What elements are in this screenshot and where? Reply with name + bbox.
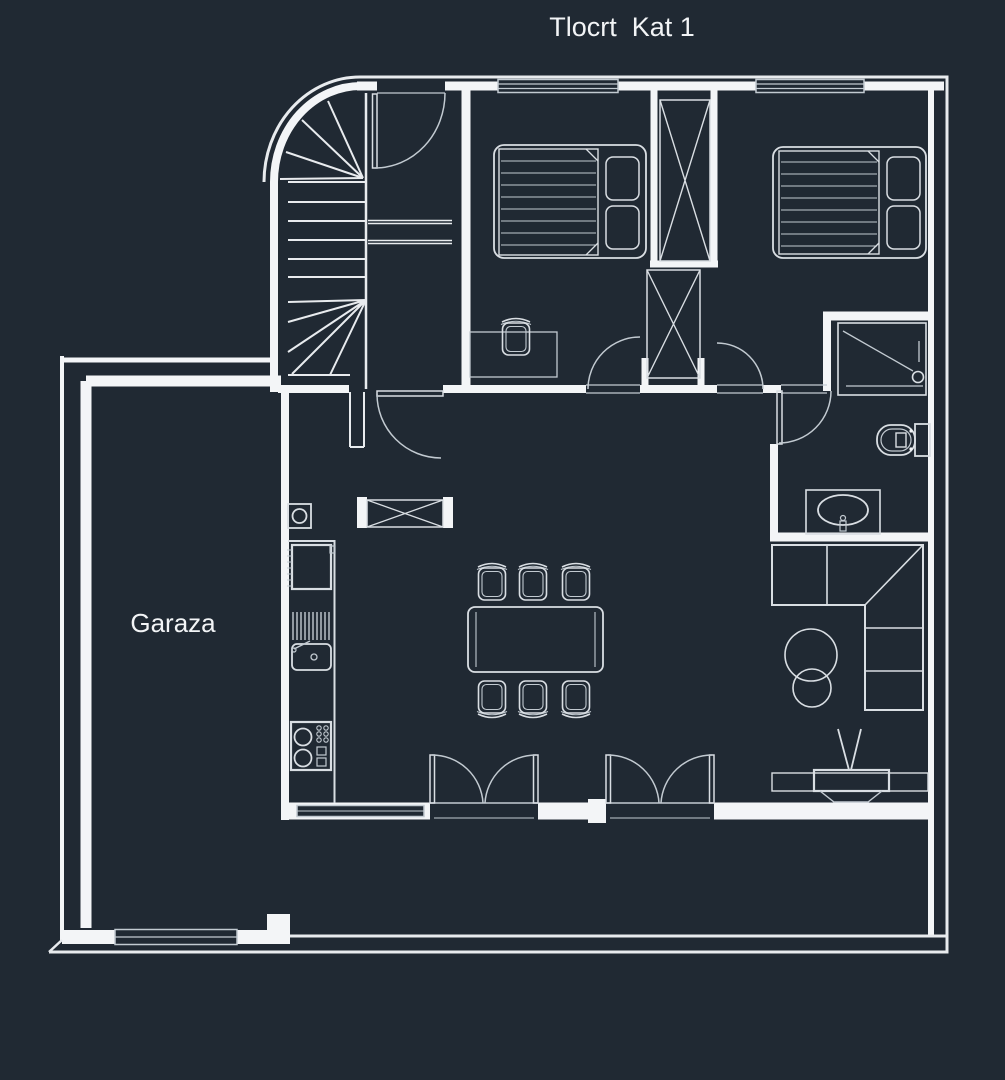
balcony-french-door-left	[430, 755, 538, 818]
tv-viewing-angle-mark	[838, 729, 861, 770]
hall-wardrobe-x	[647, 270, 700, 378]
terrace-railing	[49, 77, 947, 952]
staircase	[280, 93, 452, 447]
window-opening-2	[756, 78, 864, 94]
dining-chair	[518, 681, 548, 718]
bedroom1-door	[586, 337, 640, 393]
drawing-title: Tlocrt Kat 1	[549, 12, 695, 42]
garage-corner-pillar	[267, 914, 290, 938]
living-room-door	[377, 391, 443, 458]
dining-chair	[477, 564, 507, 601]
stool-chair	[501, 319, 531, 356]
double-bed-1	[494, 145, 646, 258]
pillow	[887, 157, 920, 200]
toilet	[877, 424, 930, 456]
floor-plan-canvas: Tlocrt Kat 1 Garaza	[0, 0, 1005, 1080]
double-bed-2	[773, 147, 926, 258]
pillow	[606, 157, 639, 200]
nesting-tables	[785, 629, 837, 707]
water-heater	[288, 504, 311, 528]
door-pillar	[588, 799, 606, 823]
shower	[838, 323, 926, 395]
corner-sofa	[772, 545, 923, 710]
garage-label: Garaza	[130, 608, 216, 638]
floor-plan-page: Tlocrt Kat 1 Garaza	[0, 0, 1005, 1080]
corridor-closet-x	[357, 497, 453, 528]
bedroom2-door	[717, 343, 763, 393]
wardrobe-shaft-x	[660, 100, 710, 261]
pillow	[887, 206, 920, 249]
window-opening-1	[498, 78, 618, 94]
fridge	[287, 545, 335, 589]
stove	[291, 722, 331, 770]
dish-drainer	[293, 612, 329, 640]
kitchen-counter	[288, 540, 335, 803]
dining-chair	[477, 681, 507, 718]
kitchen-sink	[292, 641, 331, 670]
bathroom-door	[777, 385, 831, 444]
washbasin-counter	[806, 490, 880, 534]
balcony-french-door-right	[606, 755, 714, 818]
pillow	[606, 206, 639, 249]
tv-lowboard	[772, 770, 928, 802]
stair-top-door	[373, 93, 446, 168]
dining-chair	[561, 681, 591, 718]
dining-chair	[561, 564, 591, 601]
dining-table	[468, 607, 603, 672]
garage-walls	[62, 356, 290, 941]
stair-door-opening	[377, 80, 445, 93]
dining-chair	[518, 564, 548, 601]
blanket-fold	[586, 149, 598, 255]
blanket-fold	[868, 151, 879, 254]
